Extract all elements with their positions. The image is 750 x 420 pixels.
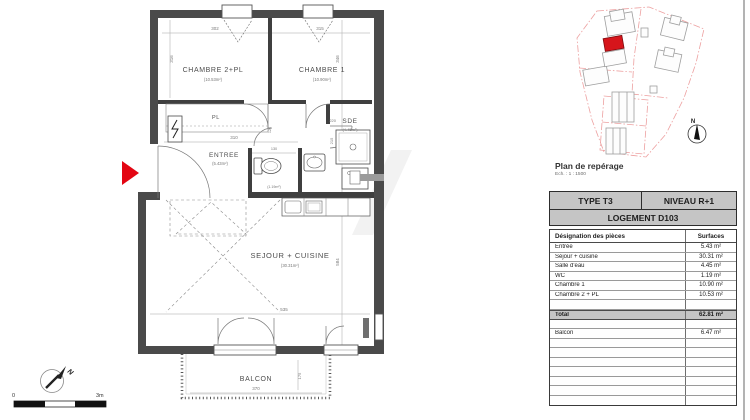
kitchen-counter <box>282 198 370 216</box>
toilet-icon <box>254 158 281 174</box>
room-area-sde: (4.45m²) <box>342 127 358 132</box>
site-highlight-building <box>603 35 624 51</box>
logement-cell: LOGEMENT D103 <box>549 210 737 226</box>
table-row: Chambre 1 10.90 m² <box>550 281 736 291</box>
shower-icon <box>336 130 370 164</box>
empty-row <box>550 300 736 310</box>
room-label-chambre2: CHAMBRE 2+PL <box>183 67 244 74</box>
room-area-chambre1: (10.90m²) <box>313 77 332 82</box>
room-label-sde: SDE <box>342 118 357 125</box>
balcon-value: 6.47 m² <box>685 329 736 338</box>
site-plan-scale: Ech. : 1 : 1500 <box>555 172 624 177</box>
dim-balcon-width: 370 <box>252 386 260 391</box>
fixtures <box>166 104 384 338</box>
room-area-chambre2: (10.53m²) <box>204 77 223 82</box>
door-swings <box>158 104 352 344</box>
entrance-arrow <box>122 161 139 185</box>
compass-needle-icon <box>56 366 66 379</box>
type-cell: TYPE T3 <box>550 192 642 209</box>
empty-row <box>550 339 736 349</box>
page-edge-divider <box>743 0 745 420</box>
empty-row <box>550 358 736 368</box>
table-body: Désignation des pièces Surfaces Entrée 5… <box>549 229 737 406</box>
dim-sde-width: 220 <box>329 118 336 123</box>
dim-chambre2-width: 302 <box>211 26 219 31</box>
row-label: Salle d'eau <box>550 263 685 269</box>
row-value: 5.43 m² <box>685 243 736 252</box>
column-header-row: Désignation des pièces Surfaces <box>550 230 736 243</box>
table-row: Entrée 5.43 m² <box>550 243 736 253</box>
dim-entree-width: 310 <box>230 135 238 140</box>
row-value: 30.31 m² <box>685 253 736 262</box>
balcon-label: Balcon <box>550 330 685 336</box>
scale-start: 0 <box>12 393 15 399</box>
radiator <box>363 318 369 338</box>
room-labels: CHAMBRE 2+PL (10.53m²) CHAMBRE 1 (10.90m… <box>183 67 359 383</box>
col-surfaces: Surfaces <box>685 230 736 242</box>
plan-compass: N <box>41 366 75 393</box>
dim-wc-width: 130 <box>271 147 277 151</box>
room-label-pl: PL <box>212 115 220 121</box>
dim-sejour-height: 584 <box>335 258 340 266</box>
empty-row <box>550 367 736 377</box>
room-area-sejour: (30.31m²) <box>281 263 300 268</box>
site-plan-caption: Plan de repérage Ech. : 1 : 1500 <box>555 161 624 177</box>
room-area-entree: (5.43m²) <box>212 161 228 166</box>
site-compass-north: N <box>691 119 695 125</box>
table-row: Séjour + cuisine 30.31 m² <box>550 253 736 263</box>
dim-balcon-height: 175 <box>297 372 302 379</box>
dim-chambre1-height: 346 <box>335 55 340 63</box>
room-label-chambre1: CHAMBRE 1 <box>299 67 345 74</box>
total-value: 62.81 m² <box>685 311 736 319</box>
row-label: WC <box>550 273 685 279</box>
scale-bar: 0 3m <box>12 393 106 407</box>
dim-hall-width: 120 <box>268 127 272 133</box>
niveau-cell: NIVEAU R+1 <box>642 192 736 209</box>
row-label: Entrée <box>550 244 685 250</box>
window-swing-dashes <box>224 20 333 42</box>
row-value: 10.53 m² <box>685 291 736 300</box>
dim-sejour-width: 535 <box>280 307 288 312</box>
empty-row <box>550 377 736 387</box>
site-plan <box>577 7 704 157</box>
empty-row <box>550 348 736 358</box>
table-row: WC 1.19 m² <box>550 272 736 282</box>
room-label-entree: ENTREE <box>209 152 239 159</box>
site-buildings <box>583 8 689 154</box>
row-value: 4.45 m² <box>685 262 736 271</box>
row-value: 10.90 m² <box>685 281 736 290</box>
total-row: Total 62.81 m² <box>550 310 736 320</box>
table-row: Chambre 2 + PL 10.53 m² <box>550 291 736 301</box>
row-label: Chambre 2 + PL <box>550 292 685 298</box>
plan-compass-north: N <box>66 368 75 377</box>
washbasin-icon <box>304 154 325 171</box>
plan-sheet: CHAMBRE 2+PL (10.53m²) CHAMBRE 1 (10.90m… <box>0 0 750 420</box>
dim-chambre1-width: 315 <box>316 26 324 31</box>
col-designation: Désignation des pièces <box>550 233 685 240</box>
compass-needle-icon <box>694 124 700 140</box>
room-label-balcon: BALCON <box>240 376 272 383</box>
dim-chambre2-height: 316 <box>169 55 174 63</box>
scale-end: 3m <box>96 393 104 399</box>
row-label: Séjour + cuisine <box>550 254 685 260</box>
empty-row <box>550 320 736 330</box>
row-value: 1.19 m² <box>685 272 736 281</box>
empty-row <box>550 396 736 406</box>
site-compass: N <box>688 119 706 143</box>
site-plan-title: Plan de repérage <box>555 161 624 171</box>
dim-sde-height: 215 <box>329 137 334 144</box>
table-row: Salle d'eau 4.45 m² <box>550 262 736 272</box>
surface-table: TYPE T3 NIVEAU R+1 LOGEMENT D103 Désigna… <box>549 191 737 406</box>
total-label: Total <box>550 312 685 318</box>
room-label-sejour: SEJOUR + CUISINE <box>251 251 330 260</box>
balcon-row: Balcon 6.47 m² <box>550 329 736 339</box>
room-area-wc: (1.19m²) <box>267 185 281 189</box>
row-label: Chambre 1 <box>550 282 685 288</box>
electrical-panel-icon <box>168 116 182 142</box>
empty-row <box>550 386 736 396</box>
table-header-row: TYPE T3 NIVEAU R+1 <box>549 191 737 210</box>
